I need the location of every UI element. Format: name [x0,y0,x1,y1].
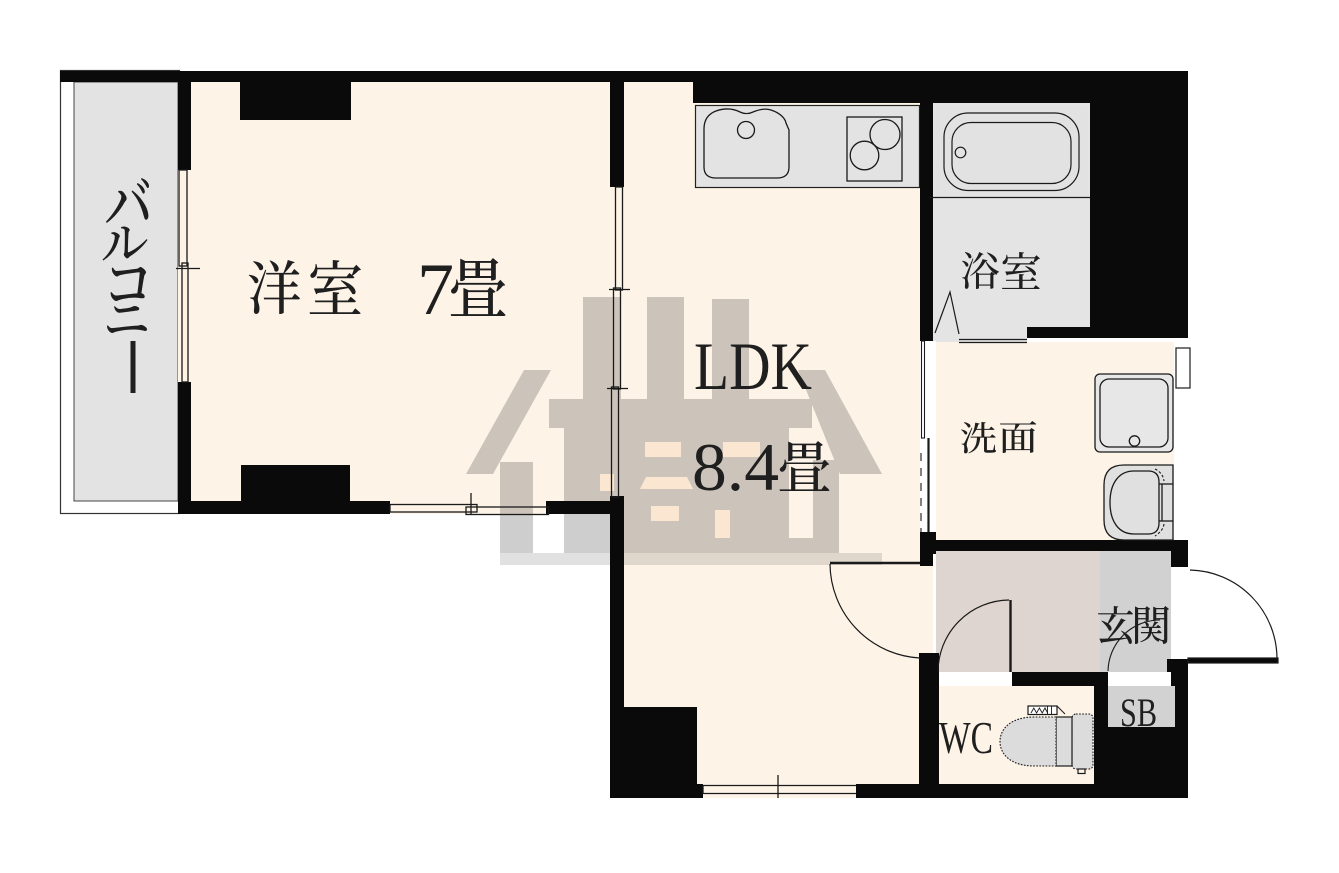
svg-text:LDK: LDK [694,328,812,404]
svg-text:7: 7 [417,249,454,331]
svg-text:8.4: 8.4 [692,429,779,505]
svg-text:SB: SB [1120,690,1157,735]
svg-text:WC: WC [939,712,993,763]
